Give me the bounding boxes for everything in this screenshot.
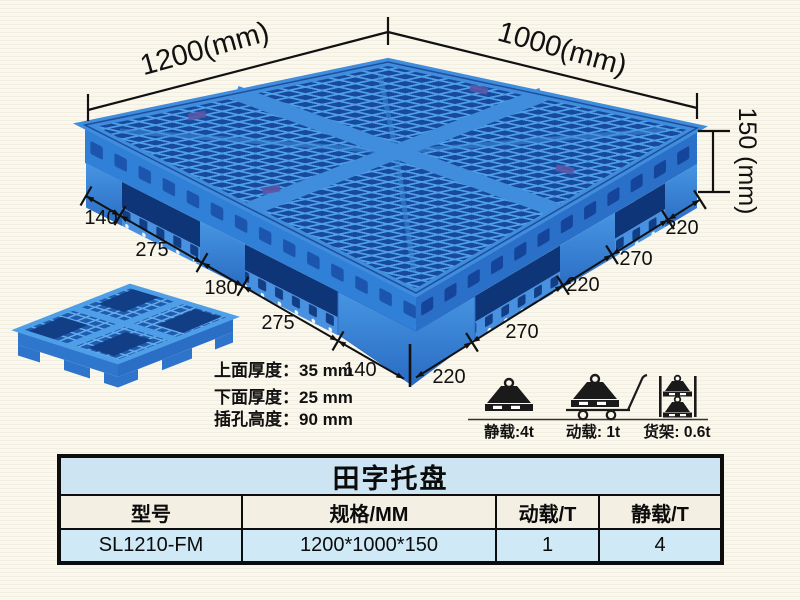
right-dim-220b: 220	[566, 274, 599, 296]
dim-length-label: 1200(mm)	[137, 16, 273, 82]
right-dim-220a: 220	[432, 366, 465, 388]
load-capacity-legend: 静载:4t 动载: 1t 货架: 0.6t	[468, 375, 711, 441]
dim-width-label: 1000(mm)	[494, 16, 630, 82]
right-dim-270a: 270	[505, 321, 538, 343]
spec-top-thickness: 上面厚度：35 mm	[214, 360, 353, 380]
spec-bottom-thickness: 下面厚度：25 mm	[214, 387, 353, 407]
cell-model: SL1210-FM	[61, 530, 241, 561]
dynamic-load-label: 动载: 1t	[566, 423, 620, 441]
static-load-icon	[485, 379, 533, 411]
header-static-load: 静载/T	[600, 496, 720, 528]
rack-load-label: 货架: 0.6t	[643, 422, 710, 441]
header-model: 型号	[61, 496, 241, 528]
right-dim-220c: 220	[665, 217, 698, 239]
cell-static-load: 4	[600, 530, 720, 561]
table-title: 田字托盘	[61, 458, 720, 494]
cell-dynamic-load: 1	[497, 530, 598, 561]
header-dynamic-load: 动载/T	[497, 496, 598, 528]
static-load-label: 静载:4t	[484, 422, 534, 441]
dynamic-load-icon	[566, 375, 647, 419]
pallet-spec-sheet: 1200(mm) 1000(mm) 150 (mm) 140 275 180 2…	[0, 0, 800, 600]
left-dim-140a: 140	[84, 207, 117, 229]
left-dim-275b: 275	[261, 312, 294, 334]
pallet-illustration: 1200(mm) 1000(mm) 150 (mm) 140 275 180 2…	[0, 0, 800, 452]
spec-fork-height: 插孔高度：90 mm	[214, 409, 353, 429]
cell-spec-mm: 1200*1000*150	[243, 530, 495, 561]
left-dim-275a: 275	[135, 239, 168, 261]
spec-table: 田字托盘 型号 规格/MM 动载/T 静载/T SL1210-FM 1200*1…	[57, 454, 724, 565]
left-dim-180: 180	[204, 277, 237, 299]
header-spec-mm: 规格/MM	[243, 496, 495, 528]
rack-load-icon	[659, 376, 697, 418]
right-dim-270b: 270	[619, 248, 652, 270]
thickness-specs: 上面厚度：35 mm 下面厚度：25 mm 插孔高度：90 mm	[214, 360, 353, 429]
dim-height-label: 150 (mm)	[733, 108, 761, 215]
small-pallet-photo	[18, 286, 233, 388]
